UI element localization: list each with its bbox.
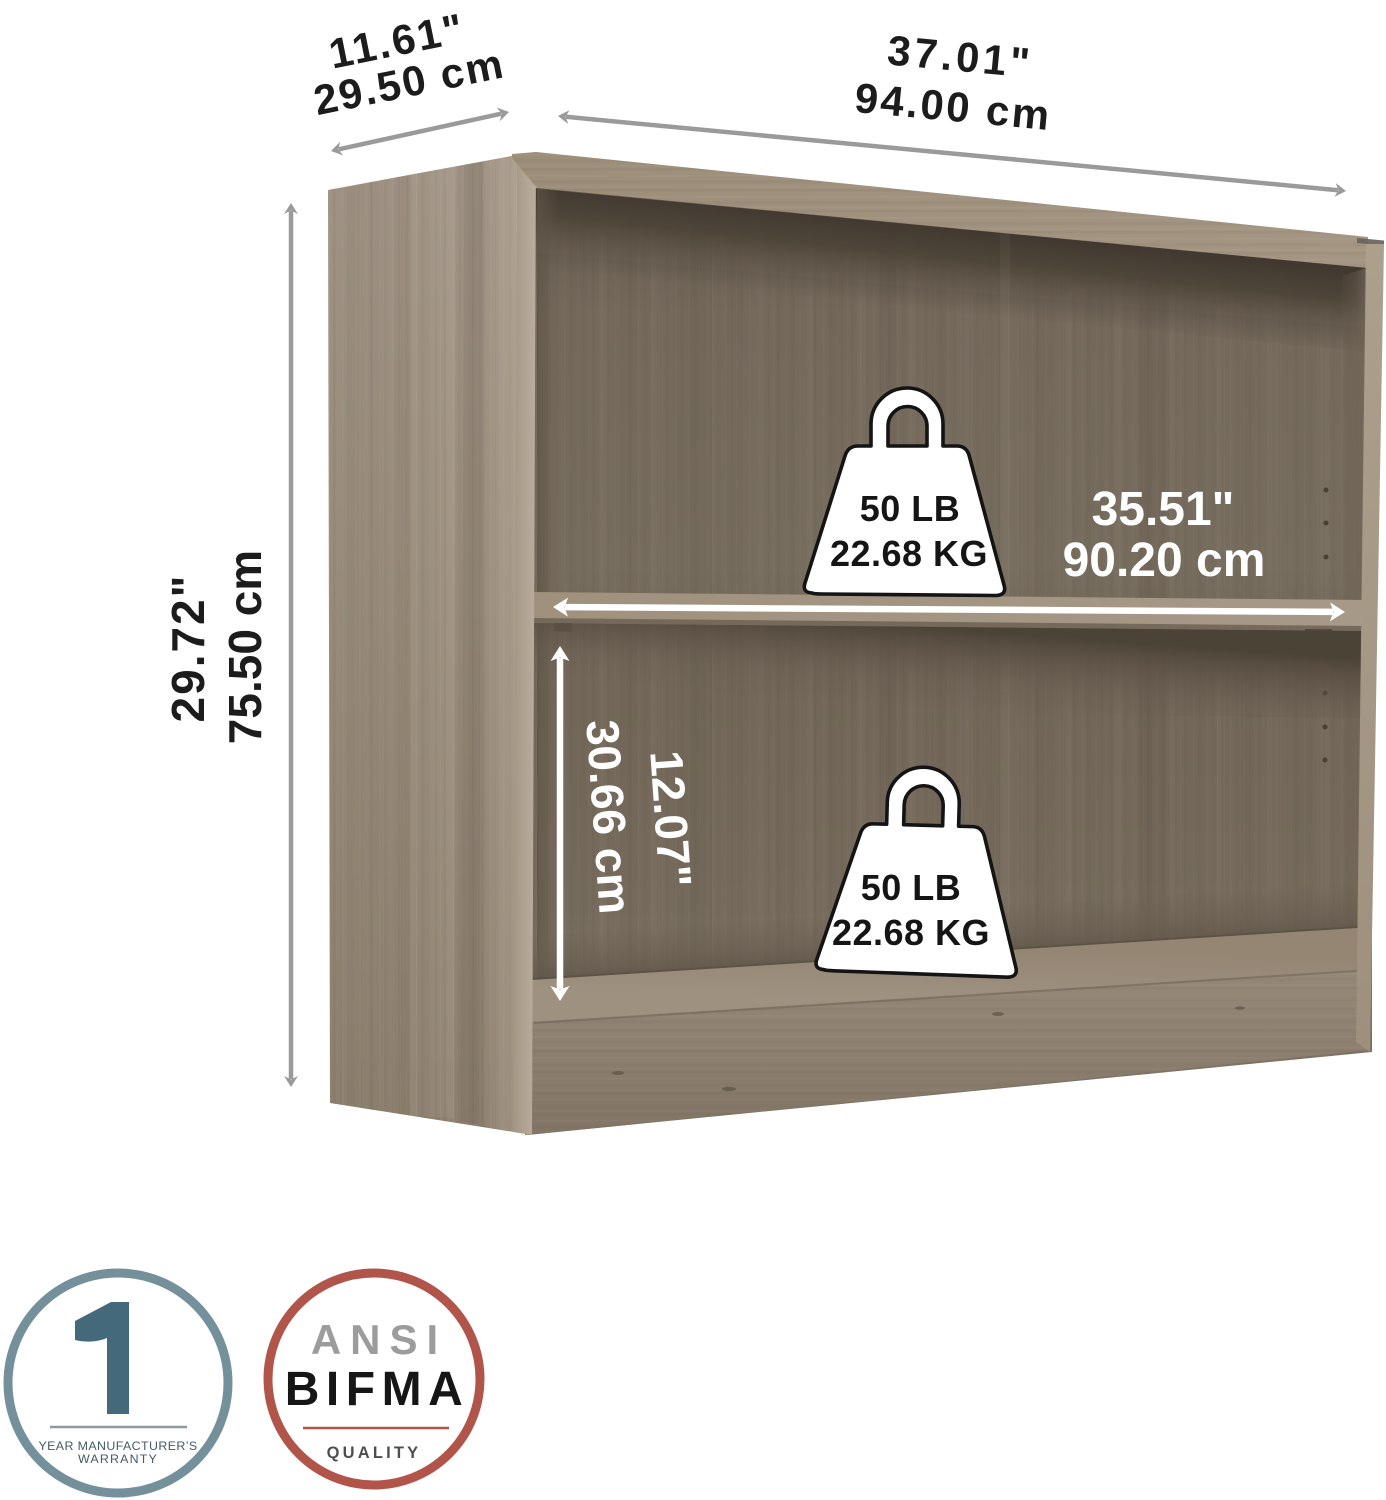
svg-text:35.51": 35.51" [1092,483,1235,536]
svg-text:YEAR MANUFACTURER’S: YEAR MANUFACTURER’S [38,1439,197,1453]
svg-text:22.68 KG: 22.68 KG [832,912,990,953]
svg-text:12.07": 12.07" [640,749,701,889]
svg-text:90.20 cm: 90.20 cm [1063,534,1266,587]
svg-text:BIFMA: BIFMA [285,1363,469,1416]
svg-text:50 LB: 50 LB [860,488,961,529]
svg-text:29.72": 29.72" [162,574,214,723]
svg-text:75.50 cm: 75.50 cm [219,550,271,744]
svg-text:50 LB: 50 LB [861,867,962,908]
svg-text:ANSI: ANSI [311,1316,447,1363]
svg-text:QUALITY: QUALITY [327,1444,422,1462]
svg-text:22.68 KG: 22.68 KG [830,533,988,574]
svg-text:WARRANTY: WARRANTY [78,1452,158,1466]
